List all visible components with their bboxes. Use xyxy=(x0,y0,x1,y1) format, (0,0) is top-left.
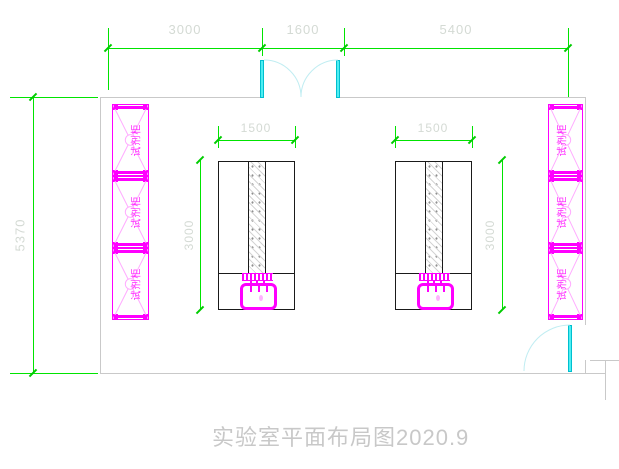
dim-ext-left-top xyxy=(10,97,98,98)
cabinet-cap xyxy=(550,106,581,109)
wall-top-right-segment xyxy=(340,97,585,98)
cabinet-label: 试剂柜 xyxy=(553,124,568,157)
door-leaf-right-icon xyxy=(336,60,340,98)
dim-ext-top-2 xyxy=(262,28,263,56)
cabinet-cap xyxy=(550,243,581,246)
dim-line-bench-right-width xyxy=(395,140,472,141)
cabinet-cap xyxy=(550,171,581,174)
wall-right-upper xyxy=(585,97,586,325)
cabinet-cap xyxy=(114,243,147,246)
sink-tick xyxy=(427,284,429,292)
sink-symbol xyxy=(417,283,454,310)
drain-icon xyxy=(436,295,440,301)
cabinet-cap xyxy=(114,250,147,253)
lab-bench-right xyxy=(395,161,472,310)
sink-tick xyxy=(443,284,445,292)
cabinet-label: 试剂柜 xyxy=(128,268,143,301)
dim-label-bench-left-depth: 3000 xyxy=(182,220,196,251)
dim-line-bench-right-depth xyxy=(502,160,503,310)
dim-ext-left-bottom xyxy=(10,373,98,374)
cabinet-cap xyxy=(114,171,147,174)
reagent-cabinet: 试剂柜 xyxy=(548,176,583,248)
cabinet-cap xyxy=(114,315,147,318)
lab-bench-left xyxy=(218,161,295,310)
cabinet-label: 试剂柜 xyxy=(128,196,143,229)
reagent-cabinet: 试剂柜 xyxy=(548,248,583,320)
reagent-cabinet: 试剂柜 xyxy=(112,176,149,248)
dim-tick xyxy=(498,306,506,314)
drain-icon xyxy=(259,295,263,301)
dim-label-top-middle: 1600 xyxy=(268,22,338,37)
dim-label-room-height: 5370 xyxy=(13,219,28,252)
wall-stub-vertical-2 xyxy=(605,360,606,400)
sink-tick xyxy=(250,284,252,292)
dim-line-top xyxy=(108,48,568,49)
wall-stub-vertical-1 xyxy=(585,360,586,373)
dim-line-left xyxy=(33,97,34,373)
cabinet-cap xyxy=(550,315,581,318)
reagent-cabinet: 试剂柜 xyxy=(112,248,149,320)
dim-tick xyxy=(196,306,204,314)
door-arc-right-icon xyxy=(301,60,338,97)
wall-bottom xyxy=(100,373,605,374)
reagent-cabinet: 试剂柜 xyxy=(112,104,149,176)
drawing-title: 实验室平面布局图2020.9 xyxy=(212,420,468,452)
dim-line-bench-left-depth xyxy=(200,160,201,310)
sink-tick xyxy=(258,284,260,292)
cabinet-label: 试剂柜 xyxy=(553,196,568,229)
cabinet-label: 试剂柜 xyxy=(128,124,143,157)
grille-symbol xyxy=(242,273,273,281)
cabinet-cap xyxy=(114,106,147,109)
hatched-column xyxy=(248,162,266,274)
dim-label-bench-left-width: 1500 xyxy=(221,121,291,135)
dim-label-top-right: 5400 xyxy=(421,22,491,37)
door-swing-arcs xyxy=(0,0,619,469)
dim-label-bench-right-depth: 3000 xyxy=(483,220,497,251)
dim-ext-top-4 xyxy=(568,28,569,97)
reagent-cabinet: 试剂柜 xyxy=(548,104,583,176)
door-leaf-bottom-right-icon xyxy=(568,325,572,372)
dim-line-bench-left-width xyxy=(218,140,295,141)
cabinet-cap xyxy=(550,250,581,253)
door-arc-bottom-icon xyxy=(524,325,570,371)
dim-label-top-left: 3000 xyxy=(150,22,220,37)
hatched-column xyxy=(425,162,443,274)
floor-plan-canvas: 3000 1600 5400 5370 试剂柜 试剂柜 试剂柜 试剂柜 xyxy=(0,0,619,469)
dim-label-bench-right-width: 1500 xyxy=(398,121,468,135)
sink-symbol xyxy=(240,283,277,310)
door-leaf-left-icon xyxy=(260,60,264,98)
wall-top-left-segment xyxy=(100,97,262,98)
dim-ext-top-1 xyxy=(108,28,109,90)
cabinet-cap xyxy=(550,178,581,181)
sink-tick xyxy=(266,284,268,292)
grille-symbol xyxy=(419,273,450,281)
sink-tick xyxy=(435,284,437,292)
cabinet-label: 试剂柜 xyxy=(553,268,568,301)
dim-ext-top-3 xyxy=(344,28,345,56)
door-arc-left-icon xyxy=(264,60,301,97)
cabinet-cap xyxy=(114,178,147,181)
wall-left xyxy=(100,97,101,373)
